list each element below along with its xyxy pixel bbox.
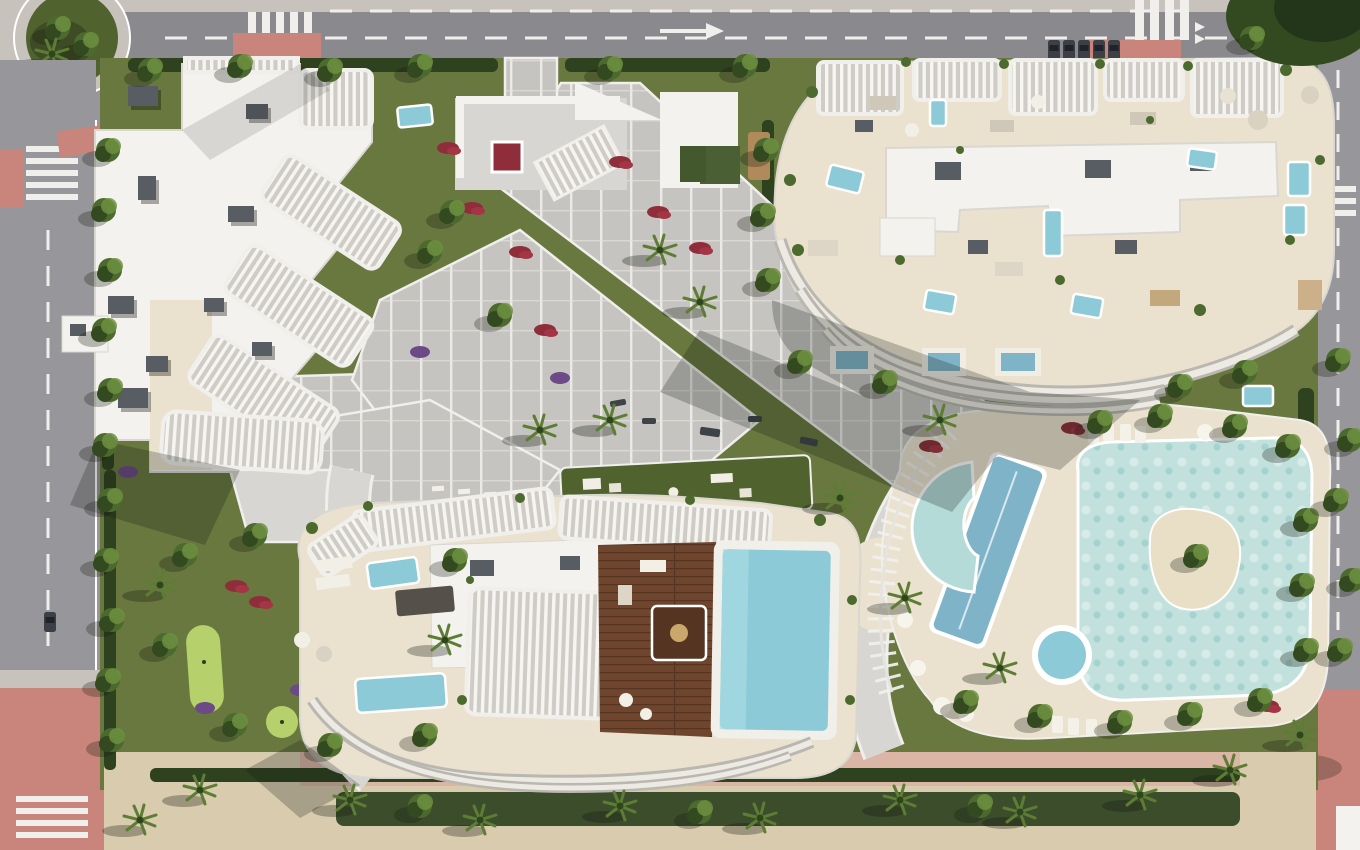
pink-island xyxy=(0,150,24,208)
planter xyxy=(492,142,522,172)
aerial-render xyxy=(0,0,1360,850)
flower-bed xyxy=(195,702,215,714)
spa-pool-water xyxy=(1038,631,1086,679)
rooftop-pool xyxy=(711,540,840,740)
building-corner xyxy=(1336,806,1360,850)
green-roof-box xyxy=(680,146,706,182)
fire-pit xyxy=(670,624,688,642)
putting-green xyxy=(185,624,225,714)
building-south xyxy=(294,488,861,788)
roof-block xyxy=(880,218,935,256)
entrance-pavilion xyxy=(455,82,740,200)
dining-table xyxy=(395,586,455,617)
car xyxy=(44,612,56,632)
hedge-band xyxy=(336,792,1240,826)
parked-cars xyxy=(1048,40,1120,60)
